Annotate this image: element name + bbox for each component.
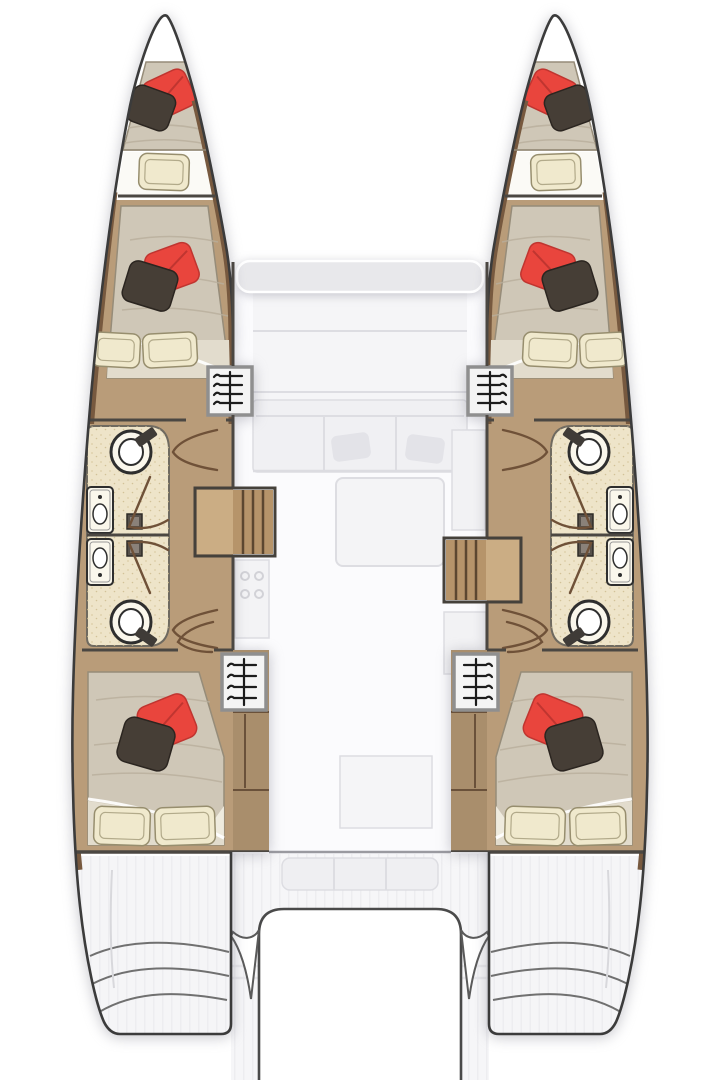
foredeck-seat-ghost — [253, 292, 467, 400]
cockpit-bench-ghost — [282, 858, 438, 890]
dining-table-ghost — [336, 478, 444, 566]
transom-cutout — [259, 909, 461, 1080]
companionway-stairs-starboard — [444, 538, 521, 602]
catamaran-floor-plan — [0, 0, 720, 1080]
galley-unit-ghost — [452, 430, 485, 530]
coachroof-front-window — [237, 261, 483, 292]
floor-plan-canvas — [0, 0, 720, 1080]
bridge-deck-ghost — [231, 290, 489, 1080]
saloon-sofa-ghost — [253, 400, 467, 472]
companionway-stairs-port — [195, 488, 275, 556]
cooktop-ghost — [235, 560, 269, 638]
saloon-unit-ghost — [340, 756, 432, 828]
